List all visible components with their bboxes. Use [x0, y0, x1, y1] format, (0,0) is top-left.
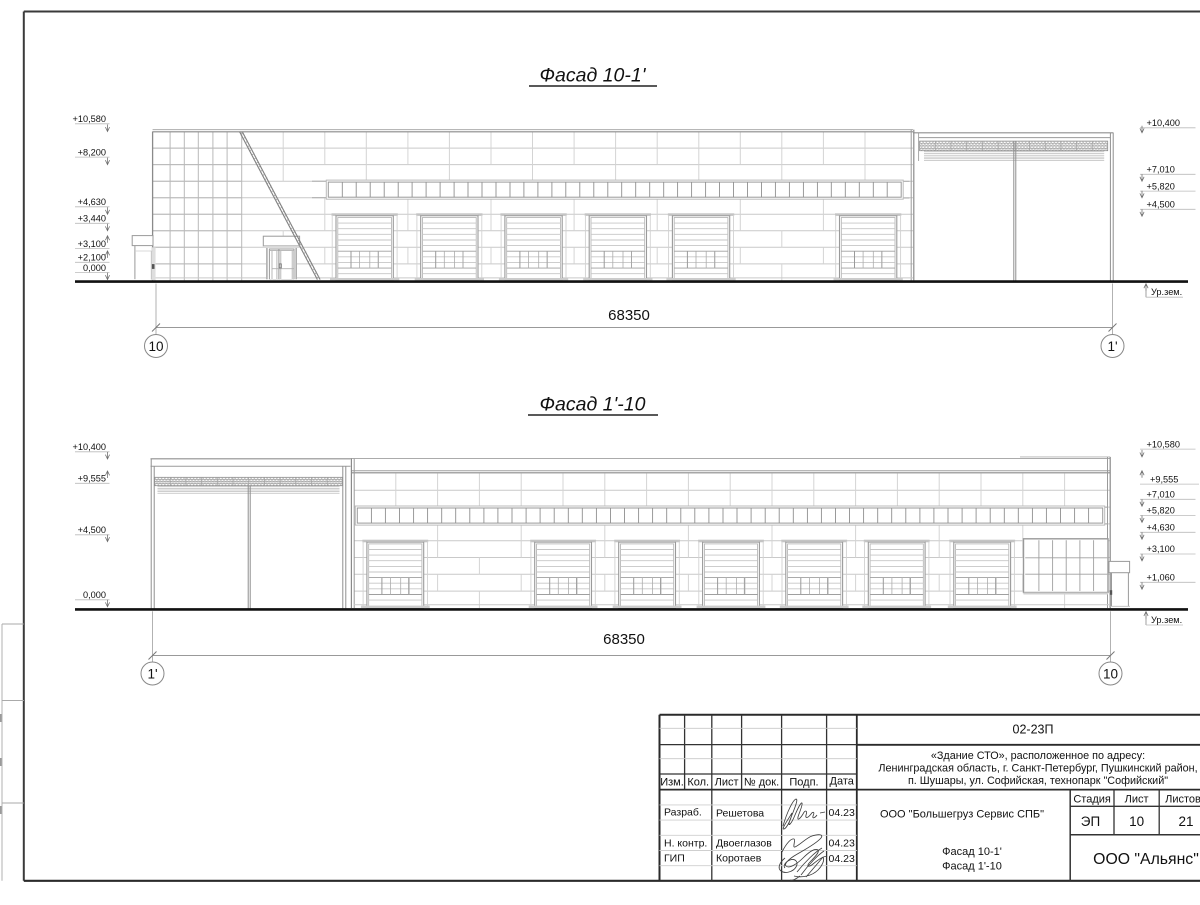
svg-text:Изм.: Изм.	[660, 777, 684, 789]
svg-text:+8,200: +8,200	[78, 147, 106, 157]
svg-text:68350: 68350	[608, 307, 650, 324]
svg-text:+7,010: +7,010	[1147, 490, 1175, 500]
svg-text:Дата: Дата	[830, 776, 855, 788]
svg-text:+10,400: +10,400	[73, 442, 106, 452]
svg-text:+4,500: +4,500	[1147, 200, 1175, 210]
svg-text:ЭП: ЭП	[1081, 814, 1100, 829]
svg-text:Подп.: Подп.	[789, 777, 818, 789]
svg-text:21: 21	[1178, 814, 1193, 829]
svg-text:+10,580: +10,580	[1147, 439, 1180, 449]
svg-text:№ док.: № док.	[744, 777, 779, 789]
svg-text:10: 10	[1103, 667, 1118, 682]
svg-text:Фасад 10-1': Фасад 10-1'	[942, 846, 1002, 858]
svg-text:+3,100: +3,100	[1147, 544, 1175, 554]
svg-text:Лист: Лист	[1125, 794, 1149, 806]
svg-text:+4,630: +4,630	[1147, 523, 1175, 533]
svg-text:10: 10	[1129, 814, 1144, 829]
svg-text:04.23: 04.23	[829, 838, 855, 850]
svg-text:+10,580: +10,580	[73, 114, 106, 124]
svg-text:+5,820: +5,820	[1147, 506, 1175, 516]
svg-text:ООО "Альянс": ООО "Альянс"	[1093, 851, 1199, 868]
svg-text:+9,555: +9,555	[1150, 474, 1178, 484]
svg-text:+4,500: +4,500	[78, 525, 106, 535]
svg-text:04.23: 04.23	[829, 853, 855, 865]
svg-text:+4,630: +4,630	[78, 197, 106, 207]
svg-text:ООО "Большегруз Сервис СПБ": ООО "Большегруз Сервис СПБ"	[880, 809, 1044, 821]
svg-text:02-23П: 02-23П	[1013, 723, 1054, 737]
svg-text:04.23: 04.23	[829, 807, 855, 819]
svg-text:+3,440: +3,440	[78, 214, 106, 224]
svg-text:Кол.: Кол.	[687, 777, 709, 789]
svg-text:Фасад 10-1': Фасад 10-1'	[540, 65, 647, 87]
svg-text:Ур.зем.: Ур.зем.	[1151, 287, 1182, 297]
svg-text:+1,060: +1,060	[1147, 573, 1175, 583]
svg-text:Ур.зем.: Ур.зем.	[1151, 615, 1182, 625]
svg-text:1': 1'	[1107, 339, 1117, 354]
svg-text:п. Шушары, ул. Софийская, техн: п. Шушары, ул. Софийская, технопарк "Соф…	[908, 775, 1168, 787]
svg-text:Стадия: Стадия	[1073, 794, 1111, 806]
svg-text:+10,400: +10,400	[1147, 118, 1180, 128]
svg-text:+7,010: +7,010	[1147, 165, 1175, 175]
svg-text:Двоеглазов: Двоеглазов	[716, 838, 772, 850]
svg-text:1': 1'	[147, 667, 157, 682]
svg-text:Разраб.: Разраб.	[664, 807, 702, 819]
svg-text:Н. контр.: Н. контр.	[664, 838, 707, 850]
svg-text:68350: 68350	[603, 631, 645, 648]
svg-text:Ленинградская область, г. Санк: Ленинградская область, г. Санкт-Петербур…	[878, 763, 1197, 775]
svg-text:+3,100: +3,100	[78, 239, 106, 249]
svg-text:10: 10	[148, 339, 163, 354]
svg-text:+5,820: +5,820	[1147, 181, 1175, 191]
svg-text:0,000: 0,000	[83, 263, 106, 273]
svg-text:Фасад 1'-10: Фасад 1'-10	[942, 861, 1002, 873]
svg-text:0,000: 0,000	[83, 590, 106, 600]
svg-text:Листов: Листов	[1165, 794, 1200, 806]
svg-text:Решетова: Решетова	[716, 808, 764, 820]
svg-text:ГИП: ГИП	[664, 853, 685, 865]
svg-text:Фасад 1'-10: Фасад 1'-10	[540, 394, 646, 416]
svg-text:Лист: Лист	[715, 777, 739, 789]
svg-text:«Здание СТО», расположенное по: «Здание СТО», расположенное по адресу:	[931, 750, 1145, 762]
svg-text:Коротаев: Коротаев	[716, 853, 762, 865]
svg-text:+9,555: +9,555	[78, 474, 106, 484]
svg-text:+2,100: +2,100	[78, 253, 106, 263]
